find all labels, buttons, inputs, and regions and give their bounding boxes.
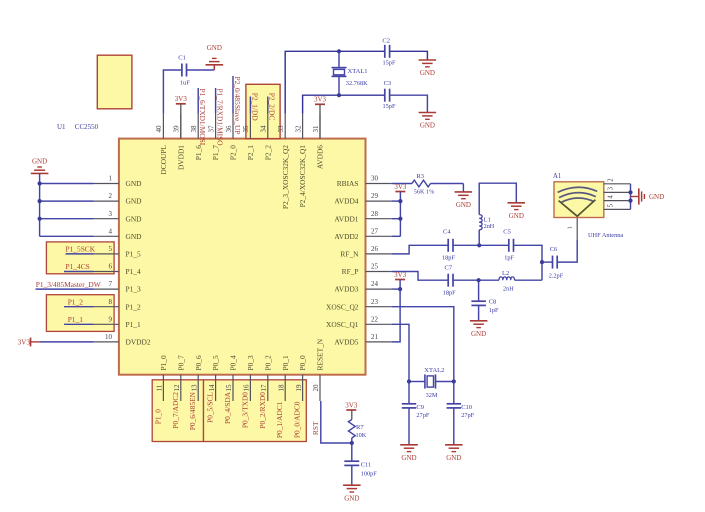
svg-text:P0_3/TXD0: P0_3/TXD0 — [240, 392, 249, 428]
svg-text:1: 1 — [109, 175, 113, 183]
svg-text:P1_5SCK: P1_5SCK — [66, 245, 96, 254]
svg-text:15pF: 15pF — [383, 103, 396, 110]
svg-text:32M: 32M — [426, 392, 438, 399]
svg-text:5: 5 — [109, 245, 113, 253]
svg-text:C6: C6 — [550, 246, 558, 253]
svg-text:13: 13 — [190, 384, 198, 392]
svg-text:12: 12 — [173, 384, 181, 392]
svg-text:25: 25 — [371, 263, 379, 271]
svg-text:XOSC_Q1: XOSC_Q1 — [326, 320, 359, 329]
svg-text:AVDD1: AVDD1 — [334, 214, 358, 223]
svg-text:AVDD5: AVDD5 — [334, 338, 358, 347]
svg-text:5: 5 — [608, 203, 615, 207]
svg-text:22: 22 — [371, 315, 379, 323]
svg-text:U1: U1 — [57, 123, 66, 131]
svg-text:L2: L2 — [502, 270, 509, 277]
svg-text:32: 32 — [294, 125, 302, 133]
svg-text:P1_1: P1_1 — [68, 315, 84, 324]
svg-text:32.768K: 32.768K — [346, 80, 368, 87]
svg-text:P2_0/485Slave_UP: P2_0/485Slave_UP — [233, 77, 242, 135]
svg-text:2nH: 2nH — [484, 223, 495, 230]
svg-text:C1: C1 — [178, 54, 186, 61]
svg-text:100pF: 100pF — [361, 470, 378, 477]
svg-text:C2: C2 — [382, 38, 390, 45]
svg-text:P1_5: P1_5 — [126, 250, 142, 259]
svg-text:DVDD1: DVDD1 — [176, 145, 185, 170]
svg-text:P0_5/SCL: P0_5/SCL — [206, 392, 215, 423]
svg-text:P2_2/DC: P2_2/DC — [268, 93, 277, 121]
svg-text:15: 15 — [225, 384, 233, 392]
svg-text:39: 39 — [173, 125, 181, 133]
svg-text:A1: A1 — [553, 173, 561, 180]
svg-text:RST: RST — [311, 421, 320, 435]
svg-text:GND: GND — [207, 44, 222, 52]
svg-text:2: 2 — [608, 178, 615, 182]
svg-text:GND: GND — [126, 214, 143, 223]
svg-text:P0_1: P0_1 — [281, 355, 290, 371]
svg-text:P2_4/XOSC32K_Q1: P2_4/XOSC32K_Q1 — [298, 145, 307, 208]
svg-text:3: 3 — [608, 186, 615, 190]
svg-text:P0_2: P0_2 — [263, 355, 272, 371]
svg-text:P1_0: P1_0 — [159, 355, 168, 371]
svg-text:UHF Antenna: UHF Antenna — [588, 232, 623, 239]
svg-text:P1_3/485Master_DW: P1_3/485Master_DW — [36, 280, 101, 289]
svg-text:35: 35 — [242, 125, 250, 133]
svg-text:P0_6: P0_6 — [194, 355, 203, 371]
svg-text:21: 21 — [371, 333, 379, 341]
svg-text:AVDD3: AVDD3 — [334, 285, 358, 294]
svg-text:4: 4 — [608, 195, 615, 199]
svg-text:GND: GND — [344, 494, 359, 502]
svg-text:38: 38 — [190, 125, 198, 133]
svg-text:28: 28 — [371, 210, 379, 218]
svg-text:GND: GND — [32, 158, 47, 166]
svg-text:24: 24 — [371, 280, 379, 288]
svg-text:GND: GND — [649, 193, 664, 201]
svg-text:C10: C10 — [461, 404, 472, 411]
svg-text:3V3: 3V3 — [175, 95, 188, 103]
svg-text:P2_3_XOSC32K_Q2: P2_3_XOSC32K_Q2 — [281, 145, 290, 209]
svg-text:3V3: 3V3 — [18, 338, 31, 346]
svg-text:20: 20 — [312, 384, 320, 392]
svg-text:P1_2: P1_2 — [68, 297, 84, 306]
svg-text:10K: 10K — [356, 432, 367, 439]
svg-text:R3: R3 — [416, 173, 424, 180]
svg-text:23: 23 — [371, 298, 379, 306]
svg-text:2.2pF: 2.2pF — [549, 273, 564, 280]
svg-text:P1_1: P1_1 — [126, 320, 142, 329]
svg-text:GND: GND — [126, 232, 143, 241]
svg-text:P0_6/485EN: P0_6/485EN — [188, 391, 197, 430]
svg-text:P1_7/RXD1/MISO: P1_7/RXD1/MISO — [216, 89, 225, 147]
svg-text:P1_3: P1_3 — [126, 285, 142, 294]
svg-text:8: 8 — [109, 298, 113, 306]
svg-text:P1_4: P1_4 — [126, 267, 142, 276]
svg-text:9: 9 — [109, 315, 113, 323]
svg-text:2: 2 — [109, 192, 113, 200]
svg-text:P2_1: P2_1 — [246, 145, 255, 161]
svg-text:3V3: 3V3 — [394, 183, 407, 191]
svg-text:DCOUPL: DCOUPL — [159, 145, 168, 175]
svg-text:P1_7: P1_7 — [211, 145, 220, 161]
svg-text:1uF: 1uF — [180, 80, 191, 87]
svg-text:6: 6 — [109, 263, 113, 271]
svg-text:AVDD2: AVDD2 — [334, 232, 358, 241]
svg-text:GND: GND — [126, 179, 143, 188]
svg-text:P0_5: P0_5 — [211, 355, 220, 371]
svg-text:GND: GND — [401, 454, 416, 462]
svg-text:DVDD2: DVDD2 — [126, 338, 151, 347]
svg-text:GND: GND — [446, 454, 461, 462]
svg-text:30: 30 — [371, 175, 379, 183]
svg-text:31: 31 — [312, 125, 320, 133]
svg-text:15pF: 15pF — [383, 60, 396, 67]
svg-text:XTAL2: XTAL2 — [424, 367, 444, 374]
svg-text:GND: GND — [456, 201, 471, 209]
svg-text:18pF: 18pF — [442, 255, 455, 262]
svg-text:P0_4: P0_4 — [229, 355, 238, 371]
svg-text:3: 3 — [109, 210, 113, 218]
svg-text:1pF: 1pF — [489, 307, 499, 314]
svg-text:RBIAS: RBIAS — [337, 179, 359, 188]
svg-text:RF_N: RF_N — [340, 250, 359, 259]
svg-text:P2_1/DD: P2_1/DD — [250, 93, 259, 122]
svg-text:P1_0: P1_0 — [153, 409, 162, 425]
svg-text:RF_P: RF_P — [342, 267, 359, 276]
svg-text:C3: C3 — [384, 80, 392, 87]
svg-text:P2_2: P2_2 — [263, 145, 272, 161]
svg-text:P2_0: P2_0 — [229, 145, 238, 161]
svg-text:P0_1/ADC1: P0_1/ADC1 — [275, 401, 284, 438]
svg-text:3V3: 3V3 — [314, 96, 327, 104]
svg-text:3V3: 3V3 — [345, 401, 358, 409]
svg-text:17: 17 — [260, 384, 268, 392]
svg-text:1pF: 1pF — [504, 255, 514, 262]
svg-text:GND: GND — [509, 212, 524, 220]
svg-text:P0_4/SDA: P0_4/SDA — [223, 391, 232, 424]
svg-text:P0_3: P0_3 — [246, 355, 255, 371]
svg-text:1: 1 — [567, 226, 574, 229]
svg-text:P1_2: P1_2 — [126, 302, 142, 311]
svg-text:27pF: 27pF — [461, 412, 474, 419]
svg-text:C4: C4 — [443, 229, 451, 236]
svg-text:AVDD4: AVDD4 — [334, 197, 358, 206]
svg-text:P0_7: P0_7 — [176, 355, 185, 371]
svg-text:34: 34 — [260, 125, 268, 133]
svg-text:29: 29 — [371, 192, 379, 200]
svg-text:33: 33 — [277, 125, 285, 133]
svg-text:P0_0: P0_0 — [298, 355, 307, 371]
svg-text:56K 1%: 56K 1% — [414, 189, 434, 196]
svg-text:XTAL1: XTAL1 — [348, 68, 368, 75]
svg-text:CC2550: CC2550 — [75, 123, 99, 131]
svg-text:GND: GND — [420, 69, 435, 77]
svg-text:C9: C9 — [416, 404, 424, 411]
svg-text:27: 27 — [371, 227, 379, 235]
svg-text:7: 7 — [109, 280, 113, 288]
svg-text:26: 26 — [371, 245, 379, 253]
svg-text:4: 4 — [109, 227, 113, 235]
svg-text:GND: GND — [420, 122, 435, 130]
svg-text:P0_7/ADC2: P0_7/ADC2 — [171, 392, 180, 429]
svg-text:16: 16 — [243, 384, 251, 392]
svg-text:36: 36 — [225, 125, 233, 133]
svg-text:37: 37 — [207, 125, 215, 133]
svg-text:P1_4CS: P1_4CS — [66, 262, 90, 271]
svg-text:C7: C7 — [445, 264, 453, 271]
svg-text:C11: C11 — [361, 461, 372, 468]
svg-text:10: 10 — [105, 333, 113, 341]
svg-text:P0_0/ADC0: P0_0/ADC0 — [293, 401, 302, 438]
svg-text:11: 11 — [156, 384, 164, 391]
svg-text:27pF: 27pF — [416, 412, 429, 419]
svg-text:C8: C8 — [489, 299, 497, 306]
svg-text:P0_2/RXD0: P0_2/RXD0 — [258, 392, 267, 429]
svg-text:P1_6/TXD1/MOSI: P1_6/TXD1/MOSI — [198, 89, 207, 146]
svg-text:19: 19 — [295, 384, 303, 392]
svg-text:14: 14 — [208, 384, 216, 392]
svg-text:AVDD6: AVDD6 — [316, 145, 325, 169]
svg-text:P1_6: P1_6 — [194, 145, 203, 161]
svg-text:C5: C5 — [503, 229, 511, 236]
svg-text:XOSC_Q2: XOSC_Q2 — [326, 302, 359, 311]
svg-text:RESET_N: RESET_N — [316, 338, 325, 370]
svg-text:18pF: 18pF — [443, 290, 456, 297]
svg-text:18: 18 — [277, 384, 285, 392]
svg-text:GND: GND — [126, 197, 143, 206]
svg-text:R7: R7 — [356, 424, 364, 431]
svg-text:2nH: 2nH — [503, 286, 514, 293]
svg-text:40: 40 — [155, 125, 163, 133]
svg-text:3V3: 3V3 — [394, 271, 407, 279]
svg-text:GND: GND — [471, 330, 486, 338]
